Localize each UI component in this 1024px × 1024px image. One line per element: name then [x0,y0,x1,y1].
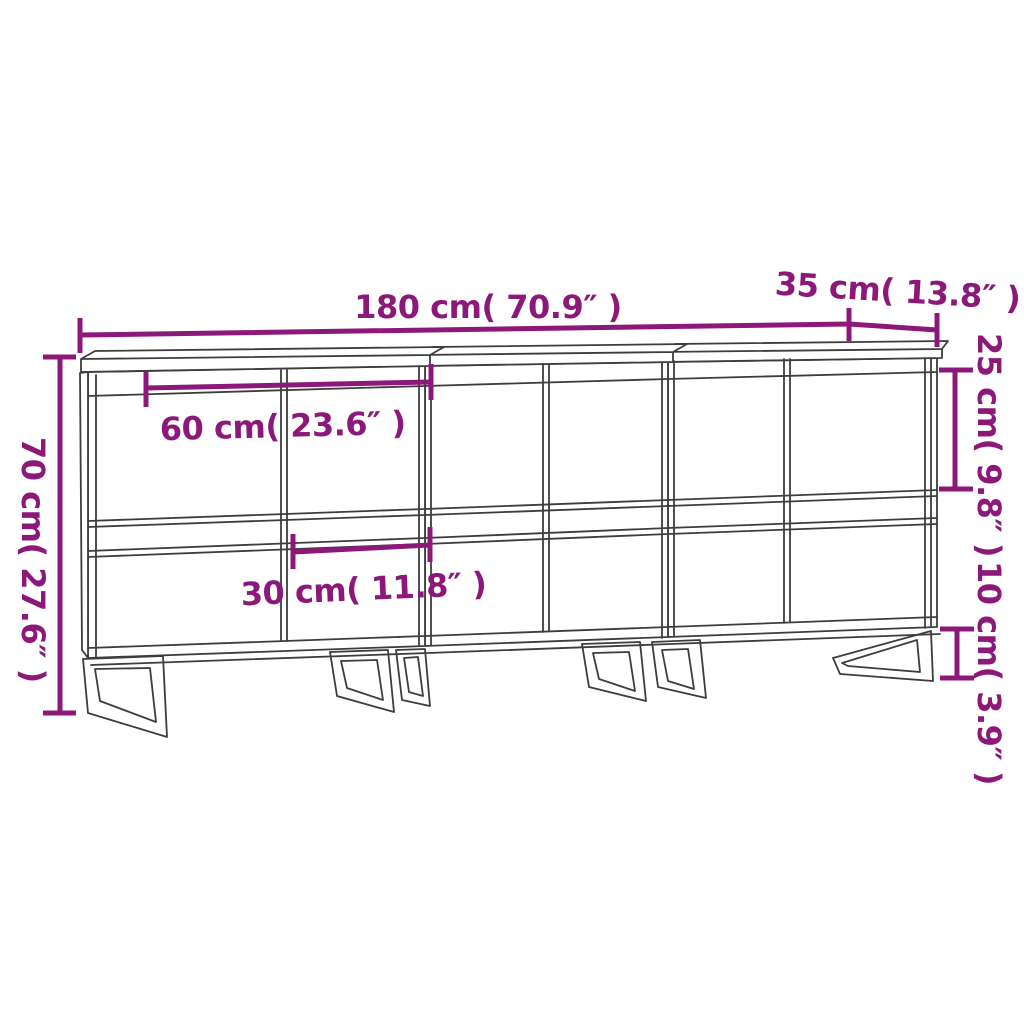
leg-4 [582,642,646,701]
dim-label-leg-height: 10 cm( 3.9″ ) [970,561,1008,785]
dim-label-upper-height: 25 cm( 9.8″ ) [970,333,1008,557]
sideboard-drawing [80,341,948,737]
unit1-left-side-face [80,372,88,658]
leg-1 [83,656,167,737]
leg-5 [652,640,706,698]
dim-label-height: 70 cm( 27.6″ ) [14,437,52,683]
dim-label-width: 180 cm( 70.9″ ) [354,288,622,326]
dim-label-unit-width: 60 cm( 23.6″ ) [159,404,406,448]
unit3-top-slab [661,341,948,362]
diagram-canvas: 180 cm( 70.9″ ) 35 cm( 13.8″ ) 60 cm( 23… [0,0,1024,1024]
leg-3 [396,649,430,706]
unit2-top-slab [418,344,687,366]
leg-2 [330,650,394,712]
dim-label-depth: 35 cm( 13.8″ ) [774,265,1022,318]
dimension-diagram: 180 cm( 70.9″ ) 35 cm( 13.8″ ) 60 cm( 23… [0,0,1024,1024]
dim-line-upper-height [939,370,973,489]
leg-6 [833,631,933,681]
dim-line-leg-height [940,629,974,678]
